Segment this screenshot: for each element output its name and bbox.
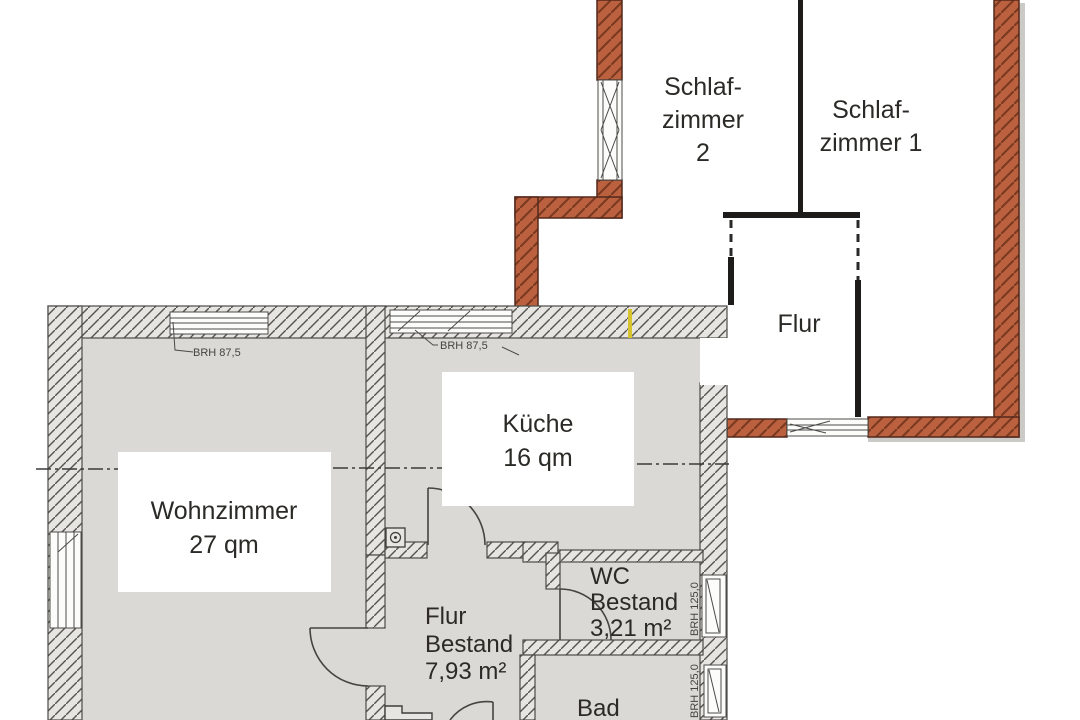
room-label-bad: Bad	[577, 695, 620, 720]
room-label-schlafzimmer2-line1: Schlaf-	[664, 73, 742, 101]
wall-new-bottom-right	[868, 417, 1019, 437]
room-area-wc: 3,21 m²	[590, 615, 671, 642]
flur-right-solid	[855, 280, 861, 417]
room-label-schlafzimmer2-line2: zimmer	[662, 106, 744, 134]
highlight-mark	[628, 309, 632, 338]
new-part-partitions	[723, 0, 861, 417]
window-kitchen-top	[390, 310, 512, 333]
floorplan-drawing: Schlaf- zimmer 2 Schlaf- zimmer 1 Flur K…	[0, 0, 1080, 720]
floorplan-page: Schlaf- zimmer 2 Schlaf- zimmer 1 Flur K…	[0, 0, 1080, 720]
window-bedroom2	[598, 80, 622, 180]
window-livingroom-top	[170, 312, 268, 334]
wall-living-kitchen	[366, 306, 385, 555]
room-label-schlafzimmer1-line2: zimmer 1	[820, 129, 923, 157]
opening-kitchen-flur	[700, 338, 730, 385]
wall-living-hall-upper	[366, 555, 385, 628]
wall-hall-wc	[546, 553, 560, 589]
wall-wc-bath	[523, 640, 703, 655]
annotation-brh-wc: BRH 125,0	[689, 582, 701, 636]
room-label-flur-neubau: Flur	[777, 310, 820, 338]
wall-kitchen-hall-right	[487, 542, 527, 558]
fixture-kitchen-corner	[386, 528, 405, 547]
wall-new-left-upper	[597, 0, 622, 80]
window-flur-neubau	[787, 419, 868, 436]
wall-old-left	[48, 306, 82, 720]
room-label-wc-line2: Bestand	[590, 589, 678, 616]
wall-new-step-vertical	[515, 197, 538, 309]
wall-bath-left	[520, 655, 535, 720]
room-area-flur-bestand: 7,93 m²	[425, 658, 506, 685]
room-area-wohnzimmer: 27 qm	[189, 531, 258, 559]
room-label-wc-line1: WC	[590, 563, 630, 590]
room-label-schlafzimmer1-line1: Schlaf-	[832, 96, 910, 124]
room-label-schlafzimmer2-line3: 2	[696, 139, 710, 167]
window-wc-right	[702, 575, 726, 637]
flur-left-solid	[728, 257, 734, 305]
room-label-flur-bestand-line2: Bestand	[425, 631, 513, 658]
wall-shadow-right	[1019, 3, 1025, 439]
room-label-flur-bestand-line1: Flur	[425, 603, 466, 630]
room-area-kueche: 16 qm	[503, 444, 572, 472]
annotation-brh-kitchen: BRH 87,5	[440, 340, 488, 352]
wall-old-top	[48, 306, 727, 338]
wall-living-hall-lower	[366, 686, 385, 720]
annotation-brh-livingroom: BRH 87,5	[193, 347, 241, 359]
wall-new-right	[994, 0, 1019, 437]
annotation-brh-bath: BRH 125,0	[689, 664, 701, 718]
window-livingroom-left	[50, 532, 81, 628]
partition-bedroom1-bedroom2	[798, 0, 803, 212]
room-label-wohnzimmer: Wohnzimmer	[151, 497, 298, 525]
flur-top-line	[723, 212, 860, 218]
label-box-kueche	[442, 372, 634, 506]
wall-wc-top	[558, 550, 703, 562]
window-bath-right	[704, 665, 726, 717]
room-label-kueche: Küche	[503, 410, 574, 438]
wall-new-bottom-left	[727, 419, 787, 437]
